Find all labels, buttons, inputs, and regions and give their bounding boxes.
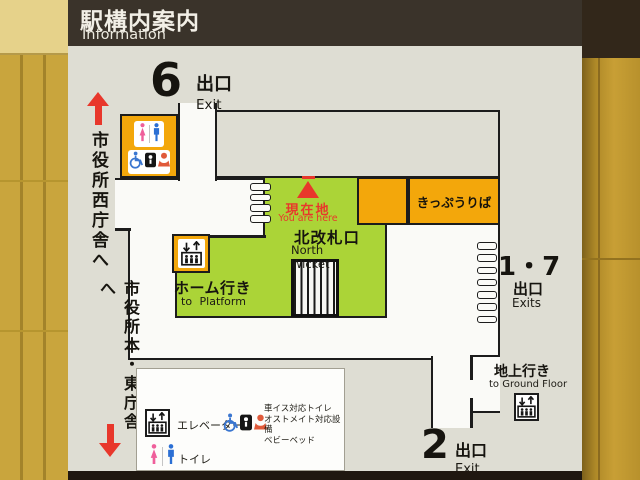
you-are-here-label-en: You are here (270, 213, 346, 224)
stairs-icon-east (477, 242, 497, 323)
map-corridor-exit6 (178, 103, 217, 181)
legend-elevator-icon (145, 409, 170, 437)
ticket-office-label: きっぷうりば (417, 192, 492, 211)
exit6-label: 出口 Exit (196, 70, 232, 113)
tile-grout-line (0, 330, 68, 332)
map-toilet-box (120, 114, 178, 178)
to-ground-label-en: to Ground Floor (489, 379, 567, 390)
legend-toilet-icons (149, 444, 176, 469)
you-are-here-marker (302, 176, 315, 179)
toilet-pictogram-box (134, 121, 164, 147)
wheelchair-icon (129, 151, 143, 173)
baby-icon (158, 152, 170, 172)
you-are-here-triangle (297, 181, 319, 198)
exit6-number: 6 (150, 56, 182, 104)
legend-box: エレベーター 車イス対応トイレ オストメイト対応設備 ベビーベッド トイレ (136, 368, 345, 471)
legend-accessible-line3: ベビーベッド (264, 436, 344, 447)
ostomate-icon (240, 414, 252, 435)
map-ticket-office-box: きっぷうりば (408, 177, 500, 225)
tile-grout-line (0, 180, 68, 182)
to-west-hall-label: 市役所西庁舎へ (86, 131, 111, 273)
male-icon (166, 444, 176, 469)
sign-bottom-edge (68, 471, 582, 480)
down-arrow-icon (99, 424, 121, 457)
map-wall-segment (470, 357, 473, 380)
female-icon (138, 123, 147, 146)
sign-title-en: Information (82, 27, 166, 43)
up-arrow-icon (87, 92, 109, 125)
sign-header: 駅構内案内 Information (68, 0, 582, 46)
legend-accessible-line1: 車イス対応トイレ (264, 404, 344, 415)
legend-accessible-icons (223, 413, 267, 436)
wall-shadow-top-right (582, 0, 640, 58)
map-corridor-west-band (115, 178, 263, 230)
elevator-icon (178, 239, 205, 268)
accessible-pictogram-box (128, 150, 170, 174)
wheelchair-icon (223, 413, 238, 436)
tiled-wall-left (0, 0, 68, 480)
legend-accessible-labels: 車イス対応トイレ オストメイト対応設備 ベビーベッド (264, 404, 344, 446)
tile-grout-line (20, 55, 23, 480)
divider (162, 447, 163, 466)
ground-elevator-icon (514, 393, 539, 421)
divider (149, 125, 150, 143)
map-corridor-exit2 (431, 356, 471, 428)
map-station-office-box (357, 177, 408, 225)
tile-grout-line (598, 58, 600, 480)
tile-grout-line (582, 258, 640, 260)
stairs-icon-west (250, 183, 271, 223)
tile-highlight-top-left (0, 0, 68, 55)
north-wicket-label-en: North Wicket (291, 243, 363, 271)
station-information-sign-photo: 駅構内案内 Information きっぷうりば (0, 0, 640, 480)
exit17-label-en: Exits (512, 296, 541, 310)
legend-accessible-line2: オストメイト対応設備 (264, 415, 344, 436)
tiled-wall-right (582, 0, 640, 480)
exit2-number: 2 (421, 424, 449, 466)
to-main-east-hall-label: 市役所本・東庁舎へ (94, 280, 142, 432)
exit6-label-en: Exit (196, 97, 232, 113)
ostomate-icon (145, 152, 156, 172)
male-icon (152, 123, 161, 146)
exit2-label-jp: 出口 (455, 437, 487, 461)
female-icon (149, 444, 159, 469)
map-room-outline (216, 110, 500, 178)
map-wall-segment (470, 398, 473, 428)
map-wall-segment (115, 228, 131, 231)
legend-toilet-label: トイレ (178, 451, 211, 467)
map-elevator-box (172, 234, 210, 273)
exit6-label-jp: 出口 (196, 70, 232, 96)
to-platform-label-en: to Platform (181, 295, 246, 308)
tile-grout-line (43, 55, 46, 480)
to-ground-label-jp: 地上行き (494, 361, 550, 381)
